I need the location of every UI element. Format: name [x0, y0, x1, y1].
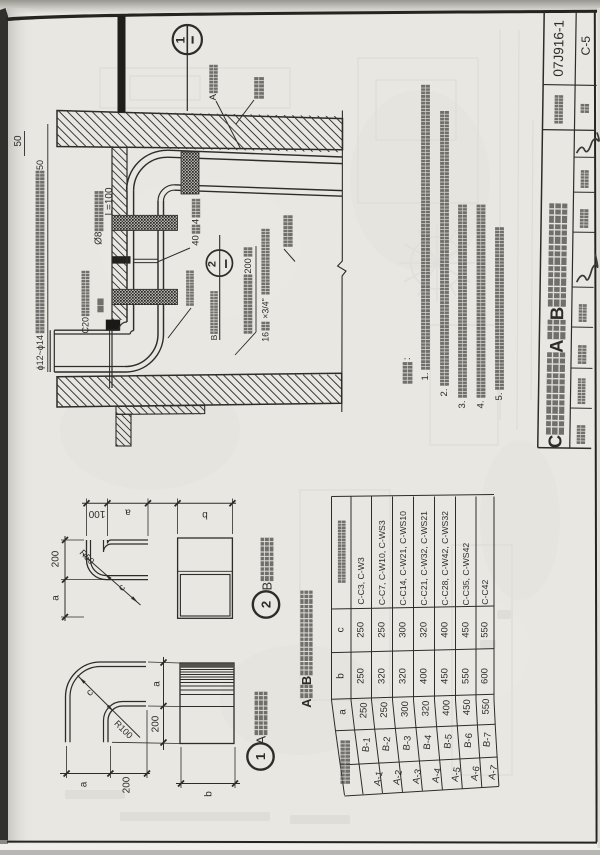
svg-text:Ø8: Ø8: [94, 231, 105, 245]
svg-text:320: 320: [377, 668, 388, 684]
svg-text:B-6: B-6: [463, 733, 475, 749]
svg-text:450: 450: [462, 699, 474, 715]
svg-text:400: 400: [440, 622, 451, 638]
svg-text:3.: 3.: [457, 401, 468, 409]
svg-text:1.: 1.: [420, 373, 431, 381]
svg-text:320: 320: [419, 622, 430, 638]
svg-text:550: 550: [460, 668, 471, 684]
svg-text:B: B: [546, 307, 567, 321]
svg-text:B: B: [299, 676, 314, 685]
svg-text:16: 16: [261, 332, 271, 342]
svg-text:L=100: L=100: [104, 187, 115, 216]
svg-text:2: 2: [207, 261, 219, 267]
svg-text:A: A: [546, 339, 567, 353]
svg-text:b: b: [204, 791, 215, 797]
svg-text:550: 550: [480, 622, 491, 638]
svg-text:A: A: [299, 698, 314, 708]
svg-text:4: 4: [191, 219, 202, 224]
svg-text:450: 450: [440, 668, 451, 684]
svg-text:100: 100: [88, 508, 105, 519]
svg-text:C-C7, C-W10, C-WS3: C-C7, C-W10, C-WS3: [377, 520, 387, 605]
svg-text:B-3: B-3: [401, 735, 413, 751]
svg-text:200: 200: [151, 715, 162, 732]
svg-text:320: 320: [398, 668, 409, 684]
svg-text:C-C14, C-W21, C-WS10: C-C14, C-W21, C-WS10: [398, 511, 408, 606]
svg-text:2.: 2.: [439, 389, 450, 397]
svg-text:B-1: B-1: [361, 737, 373, 753]
svg-text:250: 250: [358, 702, 370, 718]
svg-text:07J916-1: 07J916-1: [551, 20, 567, 77]
svg-text:550: 550: [481, 698, 493, 714]
svg-text:5.: 5.: [494, 393, 505, 401]
svg-text:250: 250: [377, 622, 388, 638]
svg-text:50: 50: [35, 160, 45, 170]
svg-text:C-C28, C-W42, C-WS32: C-C28, C-W42, C-WS32: [440, 511, 450, 606]
svg-text:C-C3, C-W3: C-C3, C-W3: [356, 557, 366, 604]
svg-text:320: 320: [420, 700, 432, 716]
svg-text:b: b: [202, 509, 208, 520]
svg-text:C-C35, C-WS42: C-C35, C-WS42: [461, 543, 471, 606]
svg-text:×3/4": ×3/4": [261, 298, 271, 319]
svg-text:C: C: [544, 435, 565, 449]
svg-text:50: 50: [13, 135, 24, 147]
svg-text:400: 400: [441, 700, 453, 716]
svg-text:250: 250: [356, 622, 367, 638]
svg-text:ϕ12~ϕ14: ϕ12~ϕ14: [35, 335, 45, 370]
svg-text:B-2: B-2: [381, 736, 393, 752]
svg-text:a: a: [338, 709, 349, 715]
svg-text:1: 1: [253, 753, 268, 760]
svg-text:300: 300: [398, 622, 409, 638]
svg-text:400: 400: [419, 668, 430, 684]
svg-text:A: A: [254, 736, 269, 745]
svg-text:4.: 4.: [476, 401, 487, 409]
svg-text:C-5: C-5: [579, 36, 593, 56]
svg-text:40: 40: [191, 235, 202, 246]
svg-text:200: 200: [51, 550, 62, 567]
svg-text:300: 300: [400, 701, 412, 717]
svg-text:B-4: B-4: [422, 734, 434, 750]
svg-text:B-7: B-7: [481, 732, 493, 748]
svg-text:B: B: [209, 334, 219, 340]
svg-text:a: a: [125, 507, 131, 518]
svg-text:a: a: [79, 781, 90, 787]
svg-text:a: a: [51, 595, 62, 601]
svg-text:600: 600: [480, 668, 491, 684]
svg-text::: :: [402, 357, 413, 360]
svg-text:C20: C20: [81, 317, 91, 334]
svg-text:B: B: [260, 582, 275, 591]
svg-text:A: A: [208, 93, 219, 100]
svg-text:b: b: [336, 673, 347, 679]
svg-text:1: 1: [174, 37, 188, 44]
svg-text:200: 200: [122, 776, 133, 793]
svg-text:c: c: [336, 627, 347, 632]
svg-text:C-C21, C-W32, C-WS21: C-C21, C-W32, C-WS21: [419, 511, 429, 606]
svg-text:250: 250: [379, 702, 391, 718]
svg-text:450: 450: [460, 622, 471, 638]
svg-text:200: 200: [243, 258, 253, 274]
svg-text:C-C42: C-C42: [480, 579, 490, 604]
svg-text:250: 250: [356, 668, 367, 684]
svg-text:B-5: B-5: [442, 733, 454, 749]
svg-text:2: 2: [259, 601, 274, 608]
svg-text:a: a: [152, 681, 163, 687]
